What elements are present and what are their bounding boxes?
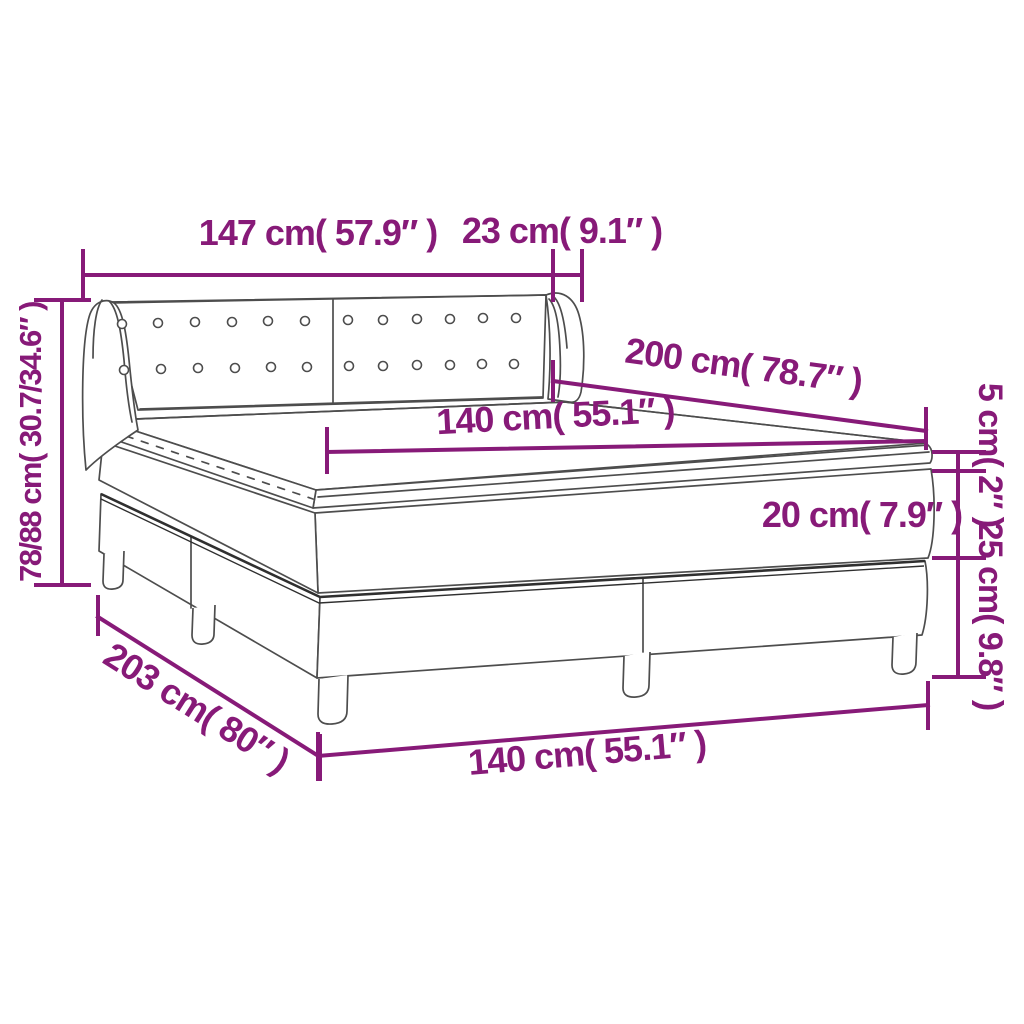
dim-label-base-width: 140 cm( 55.1″ ) <box>466 722 707 783</box>
dim-headboard-height: 78/88 cm( 30.7/34.6″ ) <box>13 300 89 585</box>
diagram-canvas: 147 cm( 57.9″ ) 23 cm( 9.1″ ) 78/88 cm( … <box>0 0 1024 1024</box>
bed-dimension-diagram: 147 cm( 57.9″ ) 23 cm( 9.1″ ) 78/88 cm( … <box>0 0 1024 1024</box>
dim-label-base-height: 25 cm( 9.8″ ) <box>971 522 1009 711</box>
leg-front-middle <box>623 652 650 697</box>
dim-label-headboard-width: 147 cm( 57.9″ ) <box>199 212 437 253</box>
dim-label-headboard-height: 78/88 cm( 30.7/34.6″ ) <box>13 302 48 582</box>
dim-label-base-length: 203 cm( 80″ ) <box>97 634 297 781</box>
leg-back-left <box>103 551 124 589</box>
dim-label-mattress-thickness: 20 cm( 7.9″ ) <box>762 494 962 535</box>
leg-front-corner <box>318 675 348 724</box>
dim-base-width: 140 cm( 55.1″ ) <box>318 683 928 783</box>
leg-left-middle <box>192 605 215 644</box>
dim-label-topper-thickness: 5 cm( 2″ ) <box>971 383 1009 527</box>
dim-headboard-width: 147 cm( 57.9″ ) 23 cm( 9.1″ ) <box>83 210 662 300</box>
dim-label-wing-width: 23 cm( 9.1″ ) <box>462 210 662 251</box>
leg-front-right <box>892 633 917 674</box>
